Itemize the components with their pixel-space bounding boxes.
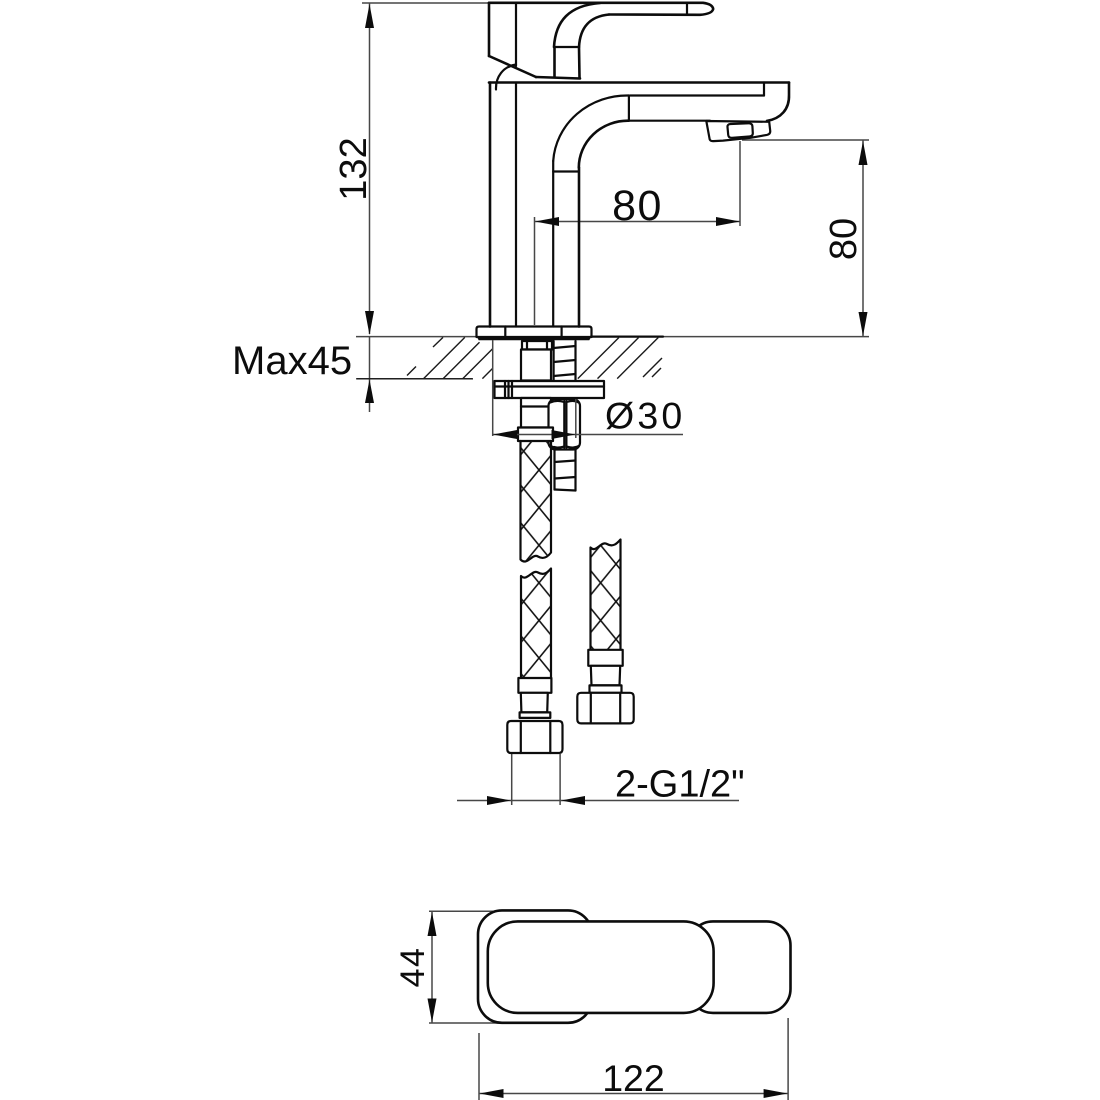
svg-text:Max45: Max45	[232, 339, 352, 383]
svg-text:132: 132	[333, 137, 375, 200]
svg-text:Ø30: Ø30	[605, 395, 685, 437]
svg-text:80: 80	[612, 182, 663, 230]
svg-text:2-G1/2": 2-G1/2"	[615, 764, 745, 806]
svg-text:44: 44	[394, 947, 432, 988]
svg-text:80: 80	[823, 218, 865, 260]
svg-text:122: 122	[602, 1057, 665, 1099]
